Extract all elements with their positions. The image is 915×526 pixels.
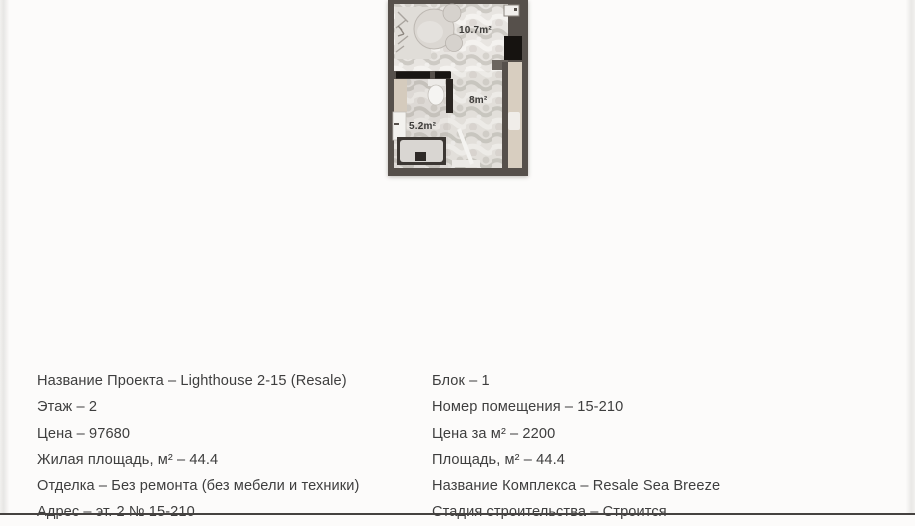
page: 10.7m² 8m² 5.2m² Название Проекта – Ligh… xyxy=(0,0,915,515)
details-column-left: Название Проекта – Lighthouse 2-15 (Resa… xyxy=(37,368,359,526)
bed xyxy=(395,4,463,59)
wardrobe xyxy=(504,36,522,60)
corridor-fixture xyxy=(508,112,520,130)
detail-complex-name: Название Комплекса – Resale Sea Breeze xyxy=(432,473,720,499)
detail-floor: Этаж – 2 xyxy=(37,394,359,420)
floorplan-image: 10.7m² 8m² 5.2m² xyxy=(388,0,528,176)
detail-block: Блок – 1 xyxy=(432,368,720,394)
counter-segment xyxy=(396,72,430,79)
page-edge-right-shade xyxy=(906,0,915,515)
detail-finishing: Отделка – Без ремонта (без мебели и техн… xyxy=(37,473,359,499)
window-latch xyxy=(514,8,517,11)
detail-price: Цена – 97680 xyxy=(37,421,359,447)
sink xyxy=(393,112,406,140)
details-column-right: Блок – 1 Номер помещения – 15-210 Цена з… xyxy=(432,368,720,526)
vanity-counter xyxy=(394,79,407,112)
detail-unit-number: Номер помещения – 15-210 xyxy=(432,394,720,420)
bathtub xyxy=(397,137,446,165)
detail-price-per-m2: Цена за м² – 2200 xyxy=(432,421,720,447)
page-edge-left-shade xyxy=(0,0,9,515)
bedroom-area-label: 10.7m² xyxy=(459,25,492,36)
hallway-area-label: 8m² xyxy=(469,95,488,106)
hallway-right-wall xyxy=(502,62,508,168)
detail-project-name: Название Проекта – Lighthouse 2-15 (Resa… xyxy=(37,368,359,394)
toilet xyxy=(428,79,445,105)
bathroom-area-label: 5.2m² xyxy=(409,121,437,132)
hallway xyxy=(448,71,502,168)
bathroom-wall xyxy=(446,79,453,113)
detail-total-area: Площадь, м² – 44.4 xyxy=(432,447,720,473)
counter-segment xyxy=(435,72,451,79)
detail-living-area: Жилая площадь, м² – 44.4 xyxy=(37,447,359,473)
